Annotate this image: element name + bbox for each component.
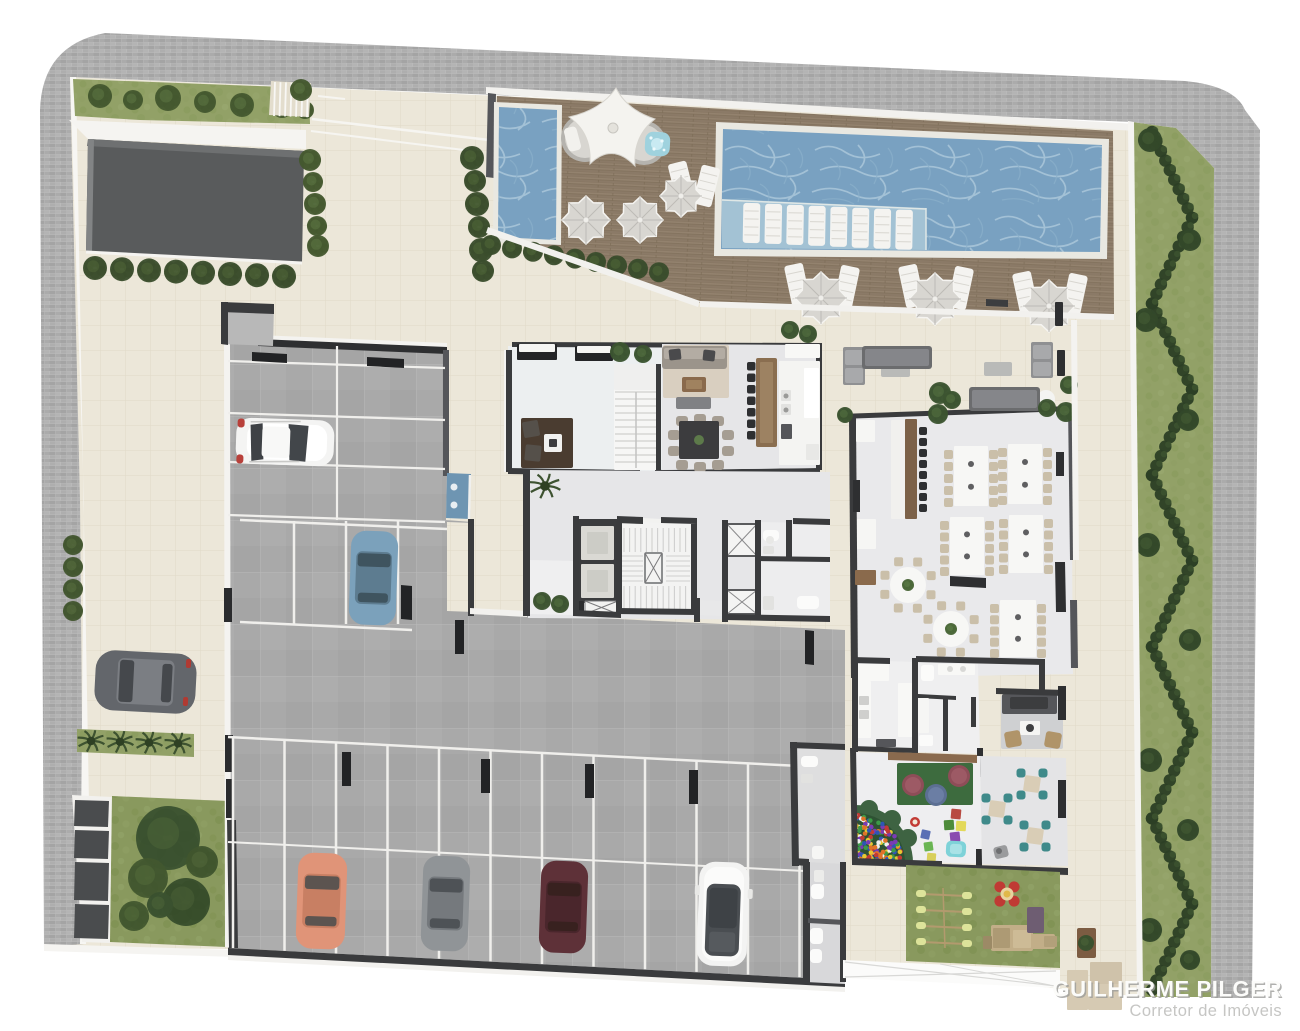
svg-text:Corretor de Imóveis: Corretor de Imóveis [1130, 1002, 1282, 1020]
svg-text:GUILHERME PILGER: GUILHERME PILGER [1052, 977, 1282, 1002]
